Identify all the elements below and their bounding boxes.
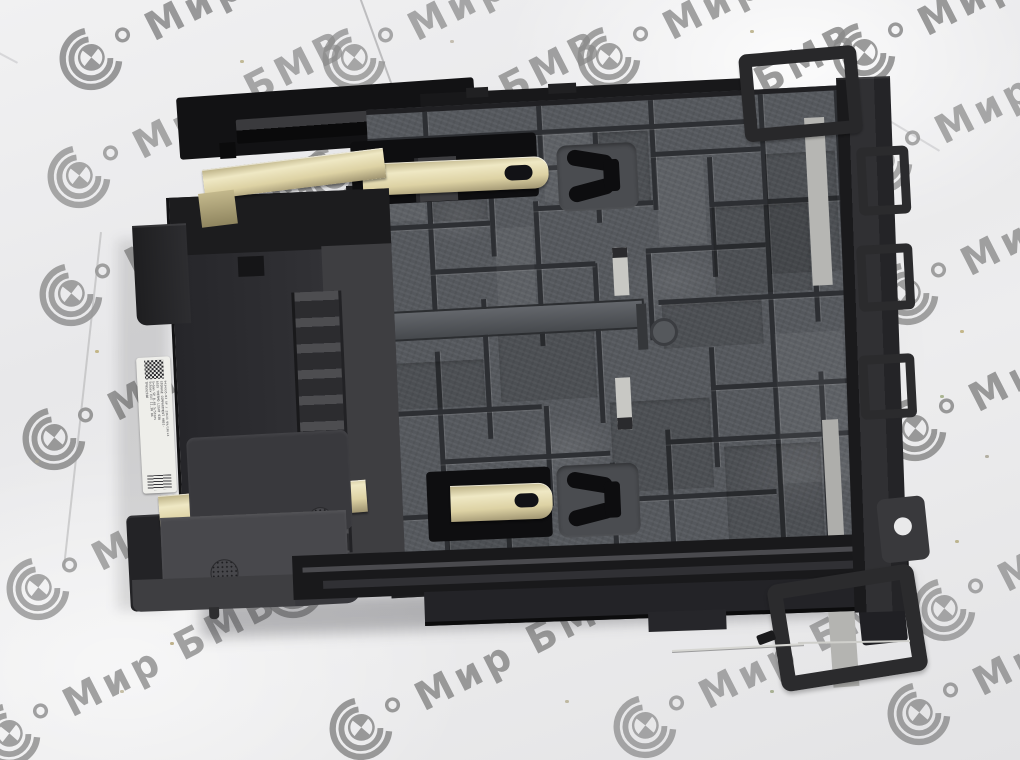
paper-speck: [750, 30, 754, 33]
label-barcode: [148, 474, 173, 490]
paper-speck: [940, 395, 944, 398]
mount-hole: [893, 516, 913, 536]
cap-nub: [209, 607, 219, 619]
paper-speck: [955, 540, 959, 543]
part-label: 9434935-03 SP / 23633 09/10/23STORAGE CO…: [136, 356, 177, 494]
paper-speck: [35, 460, 39, 463]
panel-boss: [650, 318, 678, 346]
side-tab: [856, 145, 911, 216]
top-edge-tab: [548, 83, 576, 94]
lower-brass-spring-tab: [450, 482, 553, 522]
side-tab: [858, 353, 917, 420]
clip-cutout: [604, 481, 622, 518]
label-text-lines: 9434935-03 SP / 23633 09/10/23STORAGE CO…: [144, 380, 171, 473]
paper-speck: [170, 642, 174, 645]
panel-rib: [440, 451, 610, 465]
bottom-cap: [132, 574, 315, 612]
mount-flag-tab: [876, 495, 930, 564]
panel-raised-cell: [655, 157, 707, 245]
panel-recess: [387, 359, 485, 410]
top-loop-tab: [738, 45, 863, 143]
lower-clip-pocket: [556, 462, 641, 538]
panel-recess: [662, 300, 764, 349]
datamatrix-code: [144, 360, 164, 380]
brass-tab-hole: [514, 493, 538, 508]
top-bar-hook: [219, 142, 236, 159]
left-wing-top: [132, 223, 191, 326]
metal-clip-slot: [612, 247, 629, 296]
upper-clip-pocket: [556, 142, 639, 212]
clip-cutout: [603, 159, 621, 192]
paper-speck: [770, 690, 774, 693]
top-edge-tab: [466, 87, 488, 98]
bottom-bracket: [766, 563, 929, 693]
side-tab: [856, 243, 915, 312]
rail-step: [648, 609, 727, 632]
photo-bmw-storage-compartment: Мир БМВМир БМВМир БМВМир БМВМир БМВМир Б…: [0, 0, 1020, 760]
paper-speck: [95, 350, 99, 353]
metal-clip-slot: [615, 377, 633, 430]
panel-rib: [651, 146, 761, 157]
brass-tab-hole: [504, 165, 533, 181]
paper-speck: [985, 455, 989, 458]
paper-speck: [120, 690, 124, 693]
paper-speck: [240, 60, 244, 63]
paper-speck: [565, 700, 569, 703]
part-label-content: 9434935-03 SP / 23633 09/10/23STORAGE CO…: [139, 359, 175, 490]
paper-speck: [960, 330, 964, 333]
paper-speck: [450, 40, 454, 43]
gold-spring-upper-fold: [198, 190, 238, 228]
housing-hole: [238, 256, 265, 277]
